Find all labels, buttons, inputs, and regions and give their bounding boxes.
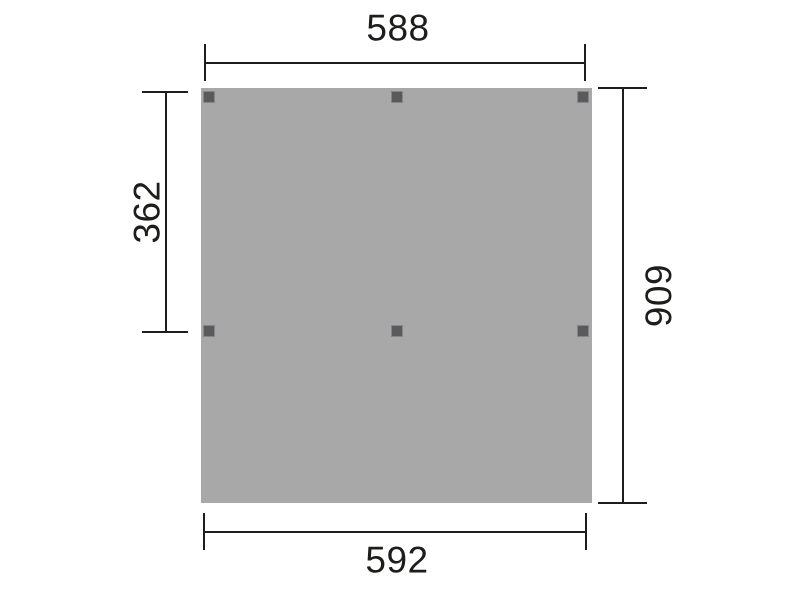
post-marker-mid-center bbox=[391, 325, 403, 337]
post-marker-top-center bbox=[391, 91, 403, 103]
dimension-tick-bottom-left bbox=[203, 513, 205, 550]
post-marker-top-right bbox=[577, 91, 589, 103]
dimension-tick-bottom-right bbox=[585, 513, 587, 550]
dimension-diagram: 588 592 362 606 bbox=[0, 0, 800, 600]
post-marker-mid-right bbox=[577, 325, 589, 337]
post-marker-top-left bbox=[203, 91, 215, 103]
dimension-label-top: 588 bbox=[366, 10, 429, 47]
dimension-tick-left-bottom bbox=[142, 331, 188, 333]
dimension-tick-top-right bbox=[584, 44, 586, 81]
dimension-line-bottom bbox=[204, 531, 587, 533]
roof-panel bbox=[201, 88, 592, 503]
dimension-tick-right-bottom bbox=[598, 502, 647, 504]
dimension-label-left: 362 bbox=[129, 180, 166, 243]
dimension-label-bottom: 592 bbox=[365, 542, 428, 579]
dimension-tick-top-left bbox=[204, 44, 206, 81]
dimension-line-top bbox=[205, 62, 585, 64]
dimension-tick-left-top bbox=[142, 91, 188, 93]
post-marker-mid-left bbox=[203, 325, 215, 337]
dimension-tick-right-top bbox=[598, 87, 647, 89]
dimension-line-right bbox=[622, 88, 624, 504]
dimension-label-right: 606 bbox=[640, 264, 677, 327]
